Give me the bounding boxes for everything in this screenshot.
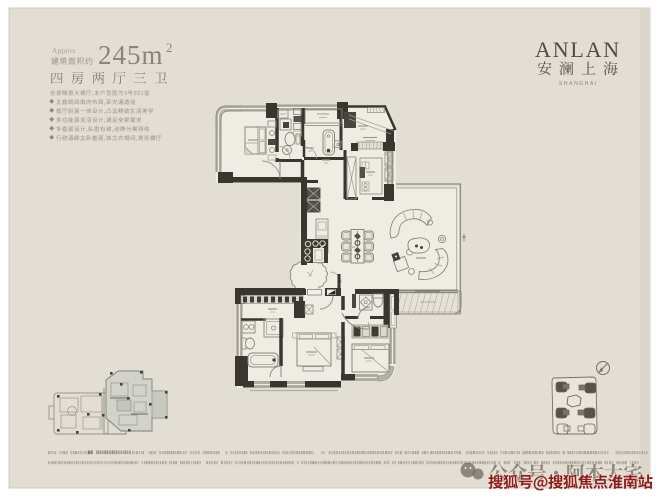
svg-text:245m: 245m [98,40,164,70]
svg-text:SHANGHAI: SHANGHAI [559,81,598,87]
svg-text:Approx: Approx [52,47,76,55]
svg-text:ANLAN: ANLAN [535,37,621,62]
svg-text:2: 2 [166,40,173,55]
